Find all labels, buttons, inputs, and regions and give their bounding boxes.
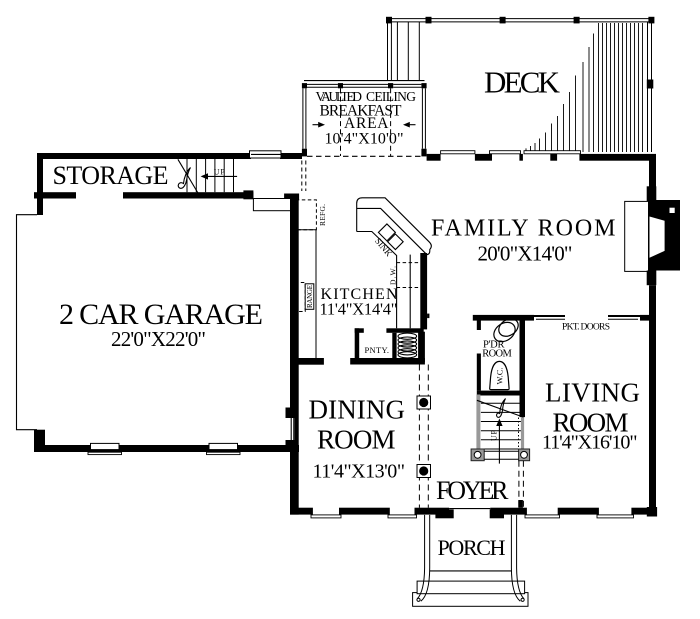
svg-text:W.C.: W.C.: [495, 368, 505, 385]
svg-text:D.W.: D.W.: [388, 266, 397, 285]
svg-text:10'4"X10'0": 10'4"X10'0": [325, 130, 404, 147]
svg-text:11'4"X14'4": 11'4"X14'4": [320, 300, 398, 319]
svg-text:20'0"X14'0": 20'0"X14'0": [478, 242, 573, 266]
svg-text:ROOM: ROOM: [317, 425, 396, 455]
svg-text:UP: UP: [490, 429, 499, 441]
svg-text:PORCH: PORCH: [438, 535, 506, 560]
svg-text:DECK: DECK: [484, 65, 561, 100]
svg-text:PNTY.: PNTY.: [365, 345, 390, 355]
svg-text:11'4"X16'10": 11'4"X16'10": [542, 432, 638, 454]
svg-text:REFG.: REFG.: [318, 204, 327, 226]
svg-text:11'4"X13'0": 11'4"X13'0": [313, 461, 406, 483]
svg-text:PKT. DOORS: PKT. DOORS: [562, 323, 610, 333]
svg-text:ROOM: ROOM: [482, 349, 512, 360]
svg-text:22'0"X22'0": 22'0"X22'0": [111, 327, 206, 351]
svg-text:FOYER: FOYER: [436, 476, 509, 505]
svg-text:FAMILY ROOM: FAMILY ROOM: [431, 216, 616, 242]
svg-text:DINING: DINING: [309, 395, 406, 425]
svg-text:STORAGE: STORAGE: [53, 161, 169, 190]
svg-text:LIVING: LIVING: [545, 378, 640, 408]
svg-text:RANGE: RANGE: [306, 285, 314, 308]
svg-text:UP: UP: [214, 168, 226, 177]
